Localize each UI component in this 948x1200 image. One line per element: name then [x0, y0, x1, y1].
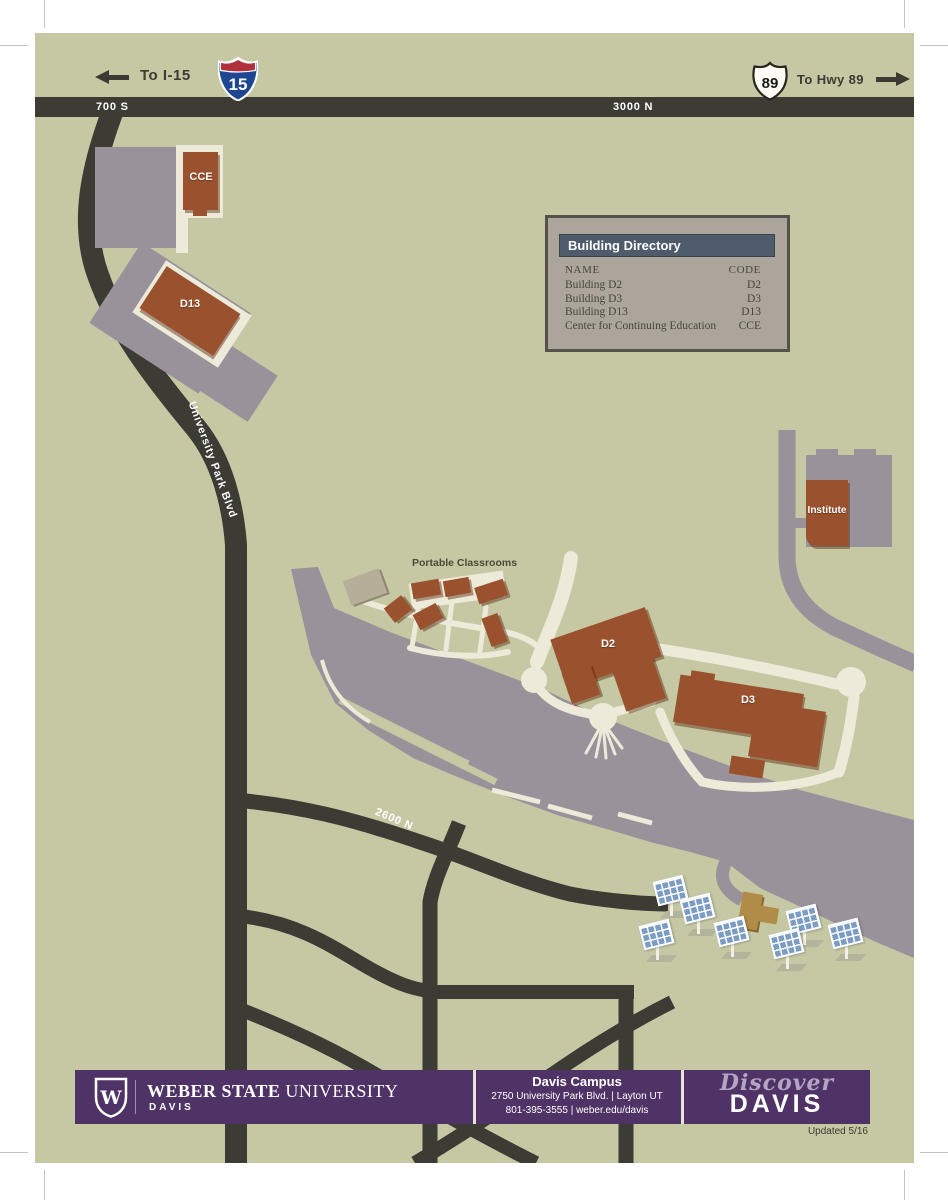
- building-cce-wing: [193, 208, 207, 216]
- institute-lot-tab: [816, 449, 838, 459]
- directory-row: Building D13 D13: [548, 306, 787, 320]
- crop-mark: [920, 1152, 948, 1153]
- footer-brand-campus: DAVIS: [149, 1102, 194, 1113]
- page: { "colors": { "background": "#c6c8a4", "…: [0, 0, 948, 1200]
- sign-to-hwy-89: To Hwy 89: [797, 72, 864, 87]
- solar-panel: [771, 931, 807, 975]
- footer-phone-web: 801-395-3555 | weber.edu/davis: [475, 1104, 679, 1118]
- crop-mark: [904, 0, 905, 28]
- footer-campus-title: Davis Campus: [475, 1074, 679, 1089]
- wsu-shield-logo-icon: W: [93, 1076, 129, 1118]
- crop-mark: [0, 1152, 28, 1153]
- directory-col-code: CODE: [729, 264, 761, 276]
- us-89-shield-icon: 89: [752, 61, 788, 101]
- updated-date: Updated 5/16: [760, 1126, 868, 1137]
- directory-col-name: NAME: [565, 264, 600, 276]
- svg-text:89: 89: [762, 75, 779, 92]
- discover-caps-text: DAVIS: [685, 1093, 869, 1116]
- solar-panel: [830, 921, 866, 965]
- interstate-15-shield-icon: 15: [218, 57, 258, 101]
- street-label-3000-n: 3000 N: [613, 101, 653, 113]
- campus-map: 700 S 3000 N University Park Blvd 2600 N…: [35, 33, 914, 1163]
- footer-contact-block: Davis Campus 2750 University Park Blvd. …: [475, 1074, 679, 1117]
- directory-row: Building D3 D3: [548, 293, 787, 307]
- footer-logo-divider: [135, 1080, 136, 1114]
- crop-mark: [904, 1170, 905, 1200]
- building-directory: Building Directory NAME CODE Building D2…: [545, 215, 790, 352]
- crop-mark: [44, 0, 45, 28]
- building-label-d3: D3: [728, 694, 768, 706]
- footer-bar: W WEBER STATE UNIVERSITY DAVIS Davis Cam…: [75, 1070, 870, 1124]
- solar-panel: [716, 919, 752, 963]
- arrow-right-icon: [874, 72, 910, 86]
- directory-row: Building D2 D2: [548, 279, 787, 293]
- footer-address: 2750 University Park Blvd. | Layton UT: [475, 1090, 679, 1104]
- svg-text:15: 15: [229, 75, 248, 94]
- crop-mark: [920, 45, 948, 46]
- sign-to-i15: To I-15: [140, 67, 191, 84]
- directory-row: Center for Continuing Education CCE: [548, 320, 787, 334]
- footer-brand: WEBER STATE UNIVERSITY: [147, 1081, 398, 1102]
- building-label-institute: Institute: [803, 505, 851, 516]
- directory-title: Building Directory: [559, 234, 775, 257]
- building-label-d13: D13: [166, 298, 214, 310]
- crop-mark: [44, 1170, 45, 1200]
- crop-mark: [0, 45, 28, 46]
- street-label-700-s: 700 S: [96, 101, 129, 113]
- building-d3-wing: [689, 670, 716, 692]
- footer-divider: [681, 1070, 684, 1124]
- cce-walkway-strip: [176, 215, 188, 253]
- institute-lot-tab: [854, 449, 876, 459]
- cce-parking-lot: [95, 147, 180, 248]
- building-label-d2: D2: [588, 638, 628, 650]
- building-d3-wing: [748, 701, 826, 767]
- solar-panel: [682, 896, 718, 940]
- arrow-left-icon: [95, 70, 131, 84]
- footer-discover-block: Discover DAVIS: [685, 1072, 869, 1116]
- svg-text:W: W: [99, 1087, 122, 1109]
- portable-classrooms-label: Portable Classrooms: [412, 557, 517, 569]
- building-label-cce: CCE: [184, 171, 218, 183]
- solar-panel: [641, 922, 677, 966]
